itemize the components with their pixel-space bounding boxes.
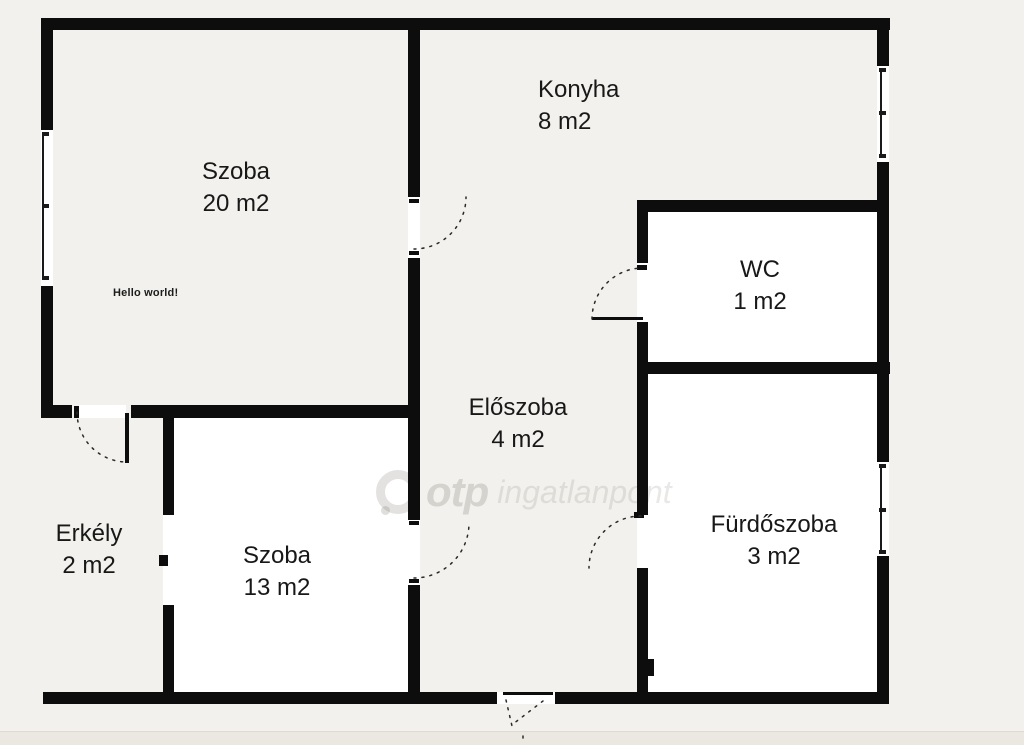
door-arc-szoba13	[414, 523, 469, 578]
door-arc-szoba20-konyha	[414, 197, 466, 249]
floor-plan: otp ingatlanpont	[0, 0, 1024, 745]
door-swing-arcs	[0, 0, 1024, 745]
door-arc-furdoszoba	[589, 516, 641, 568]
door-arc-wc	[592, 268, 643, 319]
door-arc-entrance-b	[513, 701, 543, 724]
door-arc-szoba20-erkely	[77, 412, 127, 462]
door-arc-entrance-a	[506, 700, 512, 726]
